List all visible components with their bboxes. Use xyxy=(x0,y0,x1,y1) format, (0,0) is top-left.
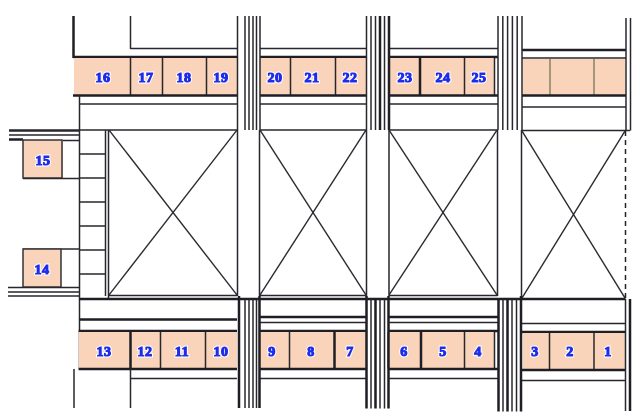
svg-text:23: 23 xyxy=(398,71,413,86)
svg-text:2: 2 xyxy=(566,345,574,360)
svg-text:3: 3 xyxy=(531,345,539,360)
svg-text:13: 13 xyxy=(97,345,112,360)
svg-text:18: 18 xyxy=(177,71,192,86)
svg-text:24: 24 xyxy=(436,71,451,86)
svg-text:21: 21 xyxy=(305,71,320,86)
svg-text:25: 25 xyxy=(472,71,487,86)
svg-text:12: 12 xyxy=(138,345,153,360)
svg-text:9: 9 xyxy=(268,345,276,360)
svg-text:4: 4 xyxy=(474,345,482,360)
svg-text:19: 19 xyxy=(214,71,229,86)
svg-text:22: 22 xyxy=(343,71,358,86)
svg-text:11: 11 xyxy=(175,345,189,360)
svg-text:20: 20 xyxy=(268,71,283,86)
svg-text:6: 6 xyxy=(400,345,408,360)
svg-text:15: 15 xyxy=(36,154,51,169)
svg-text:10: 10 xyxy=(214,345,229,360)
svg-text:7: 7 xyxy=(346,345,354,360)
svg-text:1: 1 xyxy=(604,345,612,360)
svg-text:5: 5 xyxy=(439,345,447,360)
svg-text:17: 17 xyxy=(139,71,154,86)
svg-text:16: 16 xyxy=(96,71,111,86)
svg-text:8: 8 xyxy=(307,345,315,360)
svg-text:14: 14 xyxy=(35,263,50,278)
